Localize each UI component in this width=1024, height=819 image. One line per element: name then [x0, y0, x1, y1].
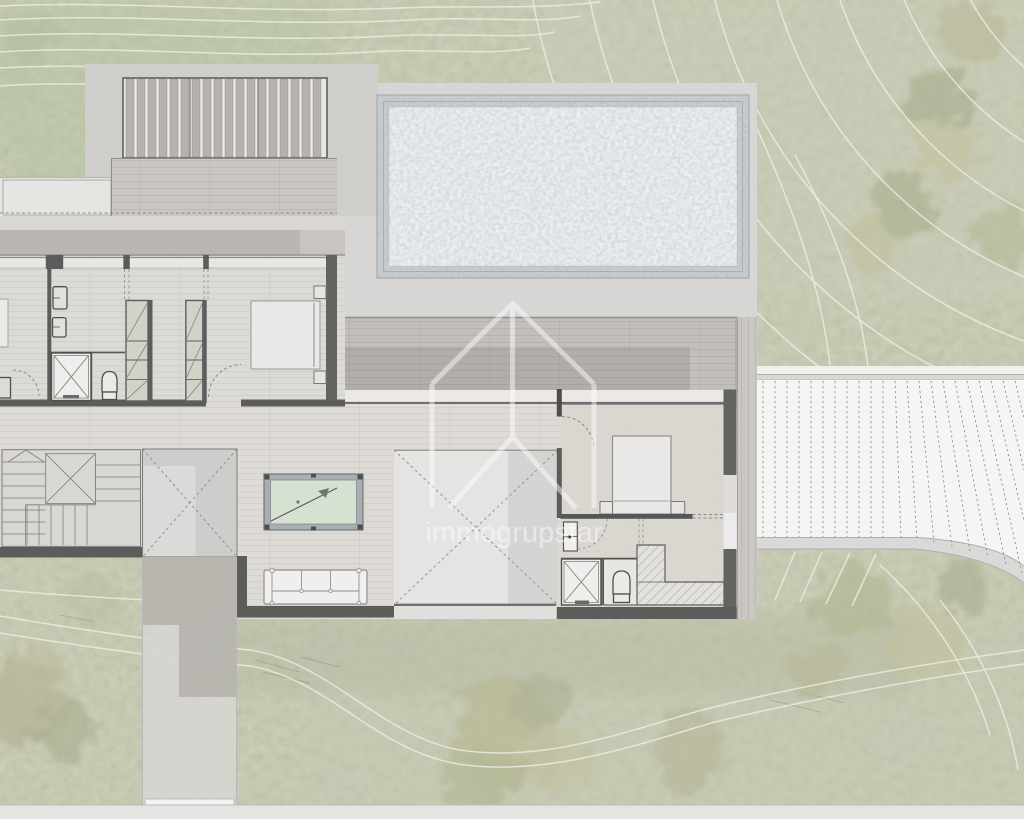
svg-text:immogrupstar: immogrupstar: [425, 517, 603, 549]
